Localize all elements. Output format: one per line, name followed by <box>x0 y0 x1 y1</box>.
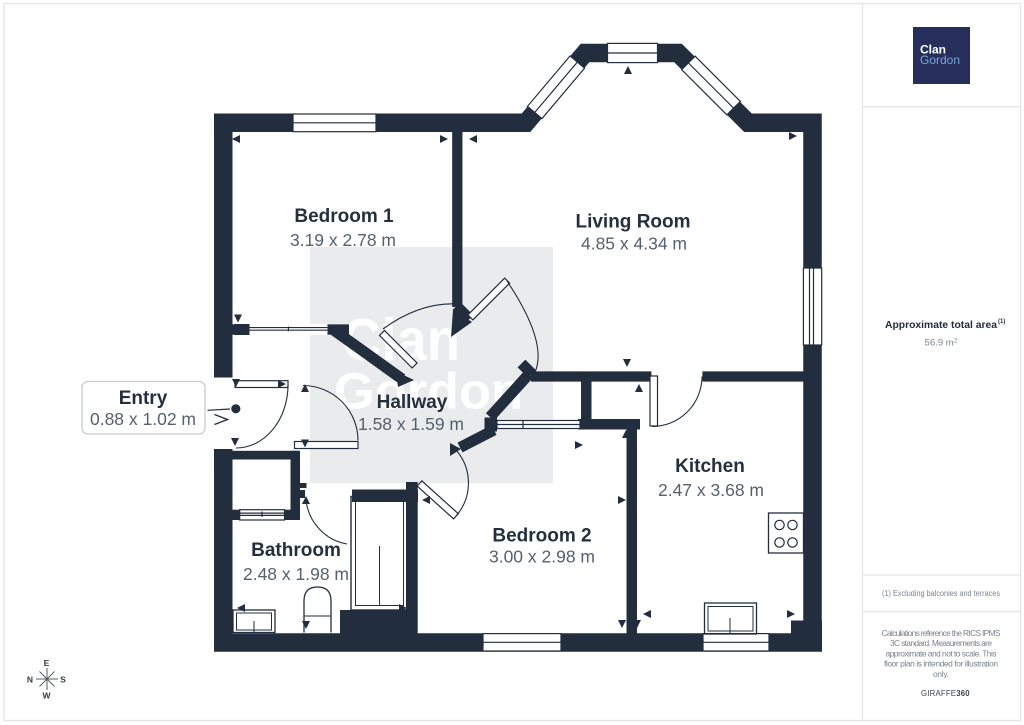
svg-text:only.: only. <box>933 669 949 679</box>
svg-text:GIRAFFE360: GIRAFFE360 <box>921 689 970 698</box>
svg-text:Calculations reference the RIC: Calculations reference the RICS IPMS <box>882 628 1001 638</box>
svg-text:4.85 x 4.34 m: 4.85 x 4.34 m <box>581 234 687 254</box>
svg-text:Approximate total area: Approximate total area <box>885 320 997 331</box>
svg-text:3C standard. Measurements are: 3C standard. Measurements are <box>890 638 992 648</box>
svg-text:Bathroom: Bathroom <box>251 540 341 561</box>
svg-text:0.88 x 1.02 m: 0.88 x 1.02 m <box>90 409 196 429</box>
svg-text:Entry: Entry <box>119 388 168 409</box>
svg-text:(1): (1) <box>998 319 1005 325</box>
svg-text:W: W <box>42 691 51 701</box>
svg-text:2.47 x 3.68 m: 2.47 x 3.68 m <box>658 480 764 500</box>
svg-text:approximate and not to scale.: approximate and not to scale. This <box>886 648 997 658</box>
svg-text:Bedroom 2: Bedroom 2 <box>492 526 591 547</box>
svg-text:Living Room: Living Room <box>575 212 690 233</box>
svg-text:3.19 x 2.78 m: 3.19 x 2.78 m <box>290 230 396 250</box>
svg-text:S: S <box>60 675 66 685</box>
svg-text:Hallway: Hallway <box>377 392 448 413</box>
svg-text:floor plan is intended for ill: floor plan is intended for illustration <box>884 659 998 669</box>
svg-text:3.00 x 2.98 m: 3.00 x 2.98 m <box>489 547 595 567</box>
svg-text:1.58 x 1.59 m: 1.58 x 1.59 m <box>358 414 464 434</box>
svg-text:Gordon: Gordon <box>920 53 960 67</box>
svg-text:E: E <box>44 658 50 668</box>
svg-text:56.9 m2: 56.9 m2 <box>925 338 958 349</box>
svg-text:(1) Excluding balconies and te: (1) Excluding balconies and terraces <box>882 588 1000 598</box>
svg-text:Bedroom 1: Bedroom 1 <box>294 206 394 227</box>
svg-text:Kitchen: Kitchen <box>675 456 745 477</box>
svg-text:2.48 x 1.98 m: 2.48 x 1.98 m <box>243 564 349 584</box>
svg-text:N: N <box>27 675 33 685</box>
